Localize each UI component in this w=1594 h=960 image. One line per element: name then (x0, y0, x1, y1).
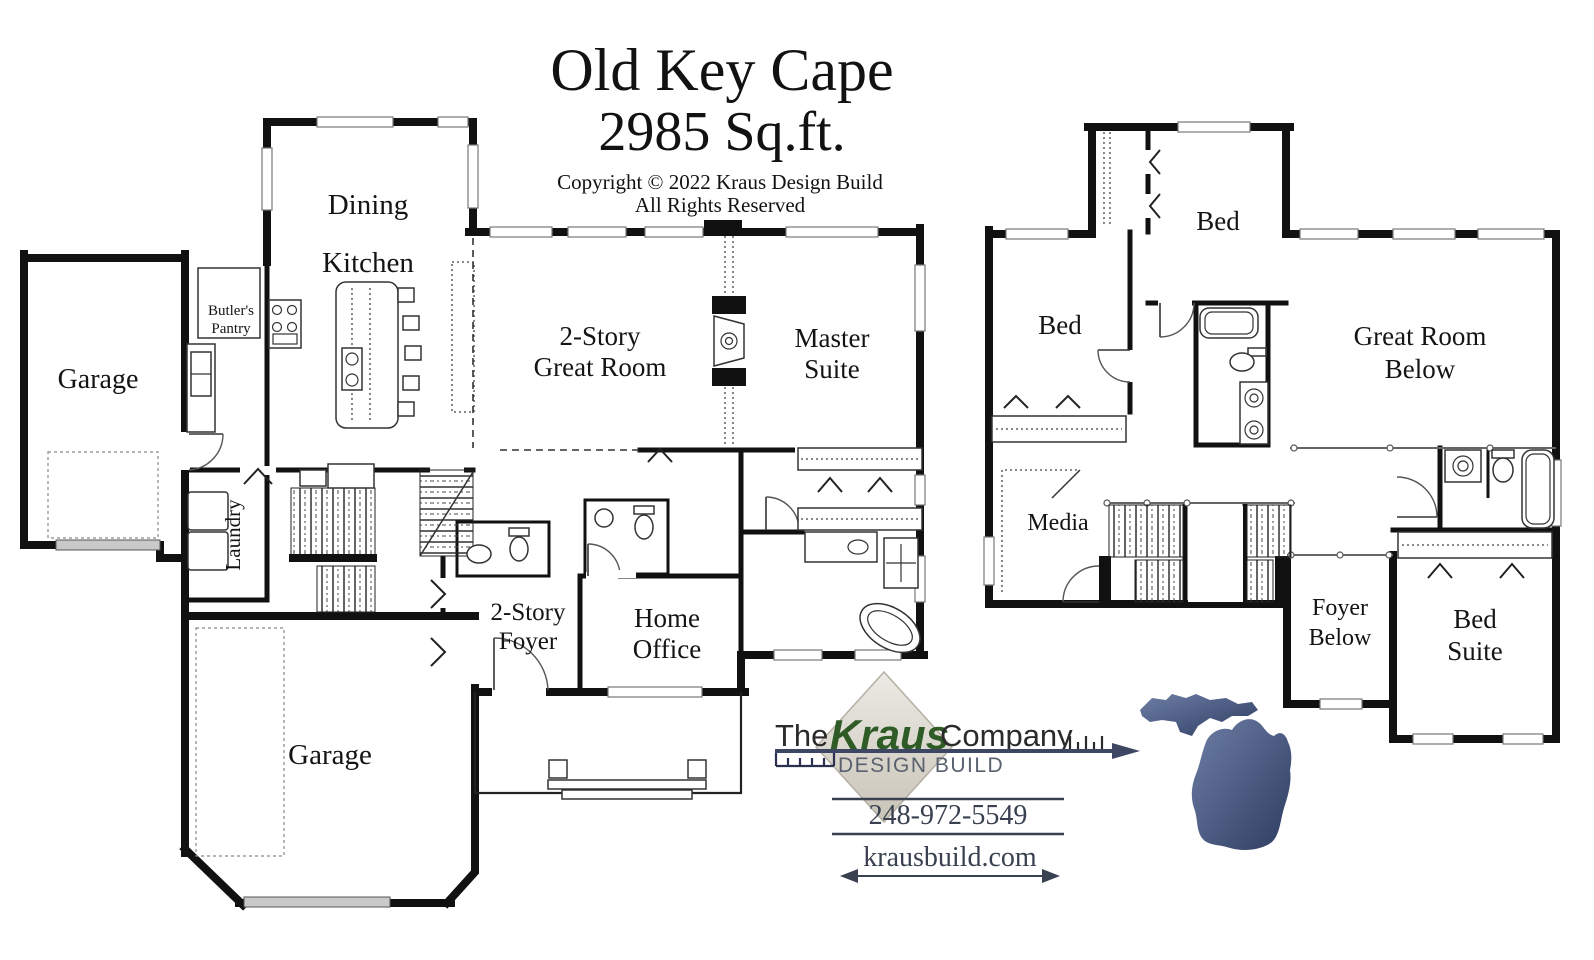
svg-text:Foyer: Foyer (499, 628, 558, 655)
floor-plan-drawing: Old Key Cape 2985 Sq.ft. Copyright © 202… (0, 0, 1594, 960)
copyright-line2: All Rights Reserved (635, 193, 806, 217)
michigan-icon (1140, 694, 1291, 850)
fireplace (712, 296, 746, 314)
svg-text:Below: Below (1309, 625, 1372, 651)
svg-text:Suite: Suite (1447, 636, 1503, 666)
hall-bath-vanity (1240, 382, 1268, 444)
master-vanity (805, 532, 877, 562)
website-link[interactable]: krausbuild.com (863, 842, 1037, 873)
logo-arrowhead-icon (1112, 743, 1140, 759)
svg-text:Suite: Suite (804, 354, 860, 384)
contact-block: 248-972-5549 krausbuild.com (832, 799, 1064, 883)
car-space (196, 628, 284, 856)
room-label-foyer: 2-Story (491, 599, 567, 626)
room-label-great-room: 2-Story (560, 321, 642, 351)
mudroom-bench (300, 470, 326, 486)
square-footage: 2985 Sq.ft. (598, 101, 845, 163)
porch-step (562, 790, 692, 799)
wc-toilet (635, 515, 653, 539)
room-label-media: Media (1027, 510, 1089, 536)
room-label-butlers-pantry: Butler's (208, 303, 254, 319)
room-label-great-room-below: Great Room (1354, 321, 1487, 351)
room-label-kitchen: Kitchen (322, 247, 414, 279)
logo-design-build: DESIGN BUILD (838, 754, 1004, 777)
wc-sink (595, 509, 613, 527)
porch-column (549, 760, 567, 778)
copyright-line1: Copyright © 2022 Kraus Design Build (557, 170, 883, 194)
garage-door (56, 540, 160, 550)
room-label-bed-suite: Bed (1453, 604, 1497, 634)
logo-company: Company (940, 718, 1073, 753)
powder-sink (467, 545, 491, 563)
chimney-block (704, 220, 742, 234)
room-label-foyer-below: Foyer (1312, 595, 1368, 621)
logo-the: The (775, 718, 828, 753)
svg-text:Office: Office (633, 634, 701, 664)
room-label-laundry: Laundry (221, 499, 245, 571)
porch-column (688, 760, 706, 778)
header: Old Key Cape 2985 Sq.ft. Copyright © 202… (550, 37, 893, 217)
car-space (48, 452, 158, 538)
second-floor-plan: Bed Bed Great Room Below Media Foyer Bel… (984, 122, 1561, 744)
bed-suite-tub (1522, 450, 1554, 528)
bed-suite-toilet (1493, 458, 1513, 482)
island-stool (398, 288, 414, 302)
svg-text:Pantry: Pantry (211, 321, 251, 337)
kitchen-counter (452, 262, 474, 412)
hall-bath-toilet (1230, 353, 1254, 371)
powder-toilet-tank (509, 528, 529, 536)
phone-number: 248-972-5549 (869, 800, 1028, 831)
porch-step (548, 780, 706, 789)
second-floor-stairs (1109, 505, 1291, 602)
floor-plan-sheet: Old Key Cape 2985 Sq.ft. Copyright © 202… (0, 0, 1594, 960)
room-label-bed-top: Bed (1196, 206, 1240, 236)
room-label-garage-left: Garage (58, 364, 139, 395)
page-title: Old Key Cape (550, 37, 893, 103)
svg-text:Great Room: Great Room (534, 352, 667, 382)
powder-toilet (510, 537, 528, 561)
garage-door (244, 897, 390, 907)
svg-text:Below: Below (1385, 354, 1456, 384)
room-label-master-suite: Master (795, 323, 870, 353)
room-label-garage-bottom: Garage (288, 739, 372, 771)
first-floor-plan: Garage Dining Kitchen Butler's Pantry 2-… (24, 117, 929, 907)
bed-suite-sink (1445, 450, 1481, 482)
room-label-home-office: Home (634, 603, 700, 633)
room-label-bed-left: Bed (1038, 310, 1082, 340)
ruler-ticks-right-icon (1070, 736, 1102, 750)
room-label-dining: Dining (328, 189, 409, 221)
